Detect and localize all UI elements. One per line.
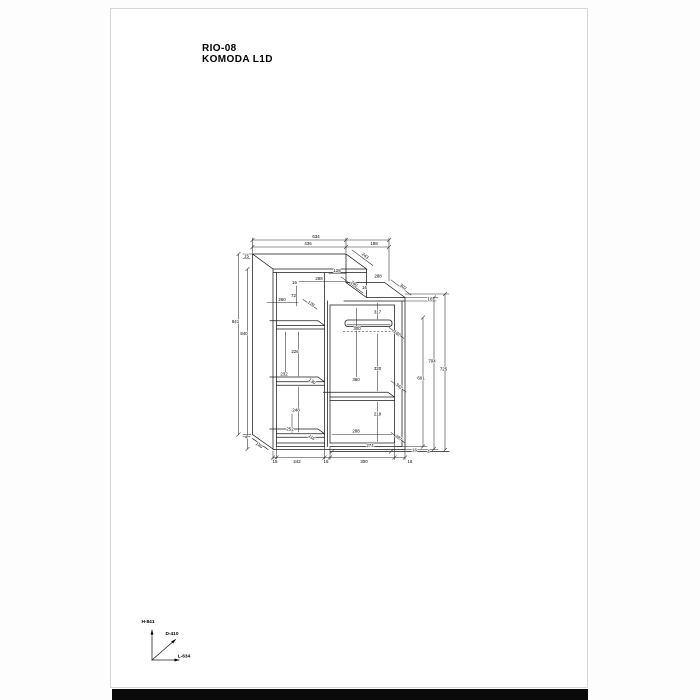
door-handle: [345, 320, 392, 327]
drawing-page-viewport: RIO-08 KOMODA L1D 6344361982431512828816…: [0, 0, 700, 700]
dimension-lines: [237, 238, 449, 460]
dimension-label: 116: [307, 433, 316, 441]
dimension-label: 242: [293, 459, 301, 464]
axis-label: H-841: [141, 619, 154, 625]
dimension-label: 16: [324, 459, 329, 464]
dimension-label: 841: [232, 319, 240, 324]
dimension-label: 16: [412, 448, 417, 453]
dimension-label: 288: [352, 429, 360, 434]
dimension-labels: 6344361982431512828816240162883027226012…: [232, 234, 448, 464]
dimension-label: 128: [333, 268, 341, 273]
dimension-label: 300: [360, 459, 368, 464]
dimension-label: 15: [273, 459, 278, 464]
axis-labels: H-841D-410L-634: [141, 619, 190, 660]
dimension-label: 130: [308, 377, 317, 386]
dimension-label: 72: [291, 293, 296, 298]
dimension-label: 232: [280, 372, 288, 377]
dimension-label: 840: [240, 331, 248, 336]
axis-label: L-634: [178, 653, 191, 659]
dimension-label: 302: [399, 283, 408, 292]
dimension-label: 288: [315, 276, 323, 281]
dimension-label: 300: [353, 326, 361, 331]
dimension-label: 320: [374, 366, 382, 371]
dimension-label: 198: [370, 241, 378, 246]
dimension-label: 219: [374, 412, 382, 417]
dimension-label: 243: [361, 252, 370, 261]
dimension-label: 226: [291, 349, 299, 354]
dimension-label: 725: [440, 367, 448, 372]
dimension-label: 240: [350, 280, 359, 289]
dimension-label: 436: [304, 241, 312, 246]
depth-axis-arrow: [152, 640, 176, 661]
dimension-label: 16: [408, 459, 413, 464]
dimension-label: 704: [428, 359, 436, 364]
dimension-label: 360: [352, 377, 360, 382]
dimension-label: 601: [417, 376, 425, 381]
technical-drawing: 6344361982431512828816240162883027226012…: [0, 0, 700, 700]
dimension-label: 317: [374, 310, 382, 315]
bottom-bar: [112, 689, 588, 700]
dimension-label: 140: [255, 441, 264, 450]
dimension-label: 252: [286, 427, 294, 432]
dimension-label: 248: [292, 408, 300, 413]
axis-label: D-410: [165, 631, 178, 637]
dimension-label: 288: [374, 274, 382, 279]
dimension-label: 260: [278, 297, 286, 302]
dimension-label: 16: [428, 297, 433, 302]
dimension-label: 128: [307, 300, 316, 309]
dimension-ticks: [237, 238, 447, 459]
dimension-label: 274: [366, 443, 374, 448]
dimension-label: 16: [362, 285, 367, 290]
dimension-label: 16: [292, 280, 297, 285]
dimension-label: 634: [312, 234, 320, 239]
dimension-label: 15: [244, 254, 249, 259]
